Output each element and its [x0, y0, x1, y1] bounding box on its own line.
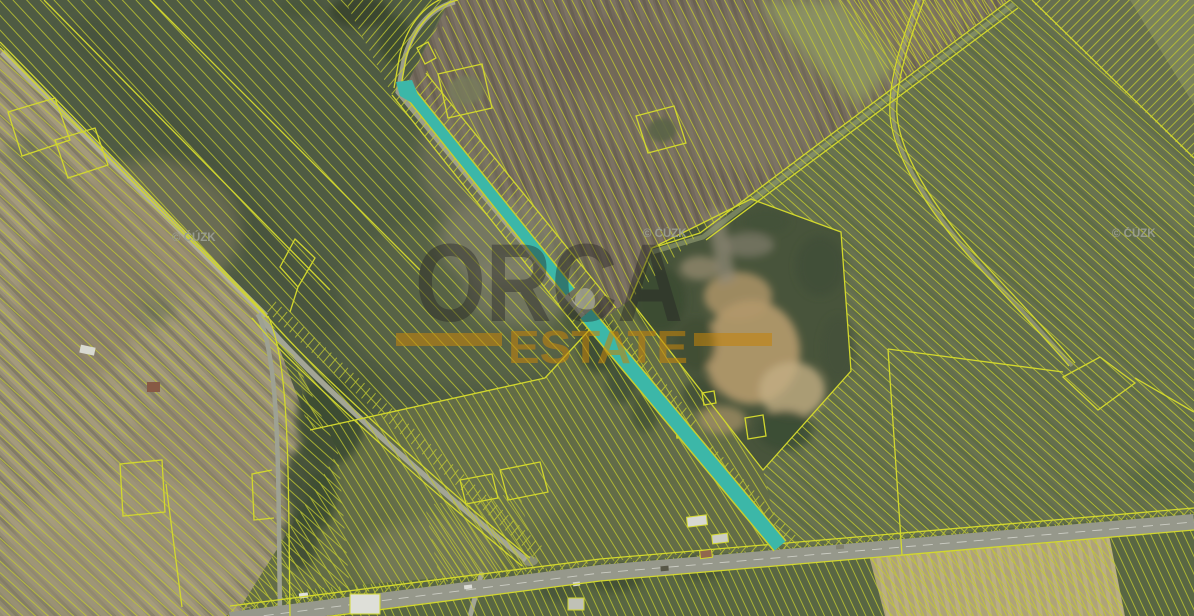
svg-text:© ČÚZK: © ČÚZK: [172, 231, 216, 244]
svg-text:© ČÚZK: © ČÚZK: [1112, 227, 1156, 240]
svg-text:© ČÚZK: © ČÚZK: [643, 227, 687, 240]
svg-text:ESTATE: ESTATE: [508, 321, 688, 373]
